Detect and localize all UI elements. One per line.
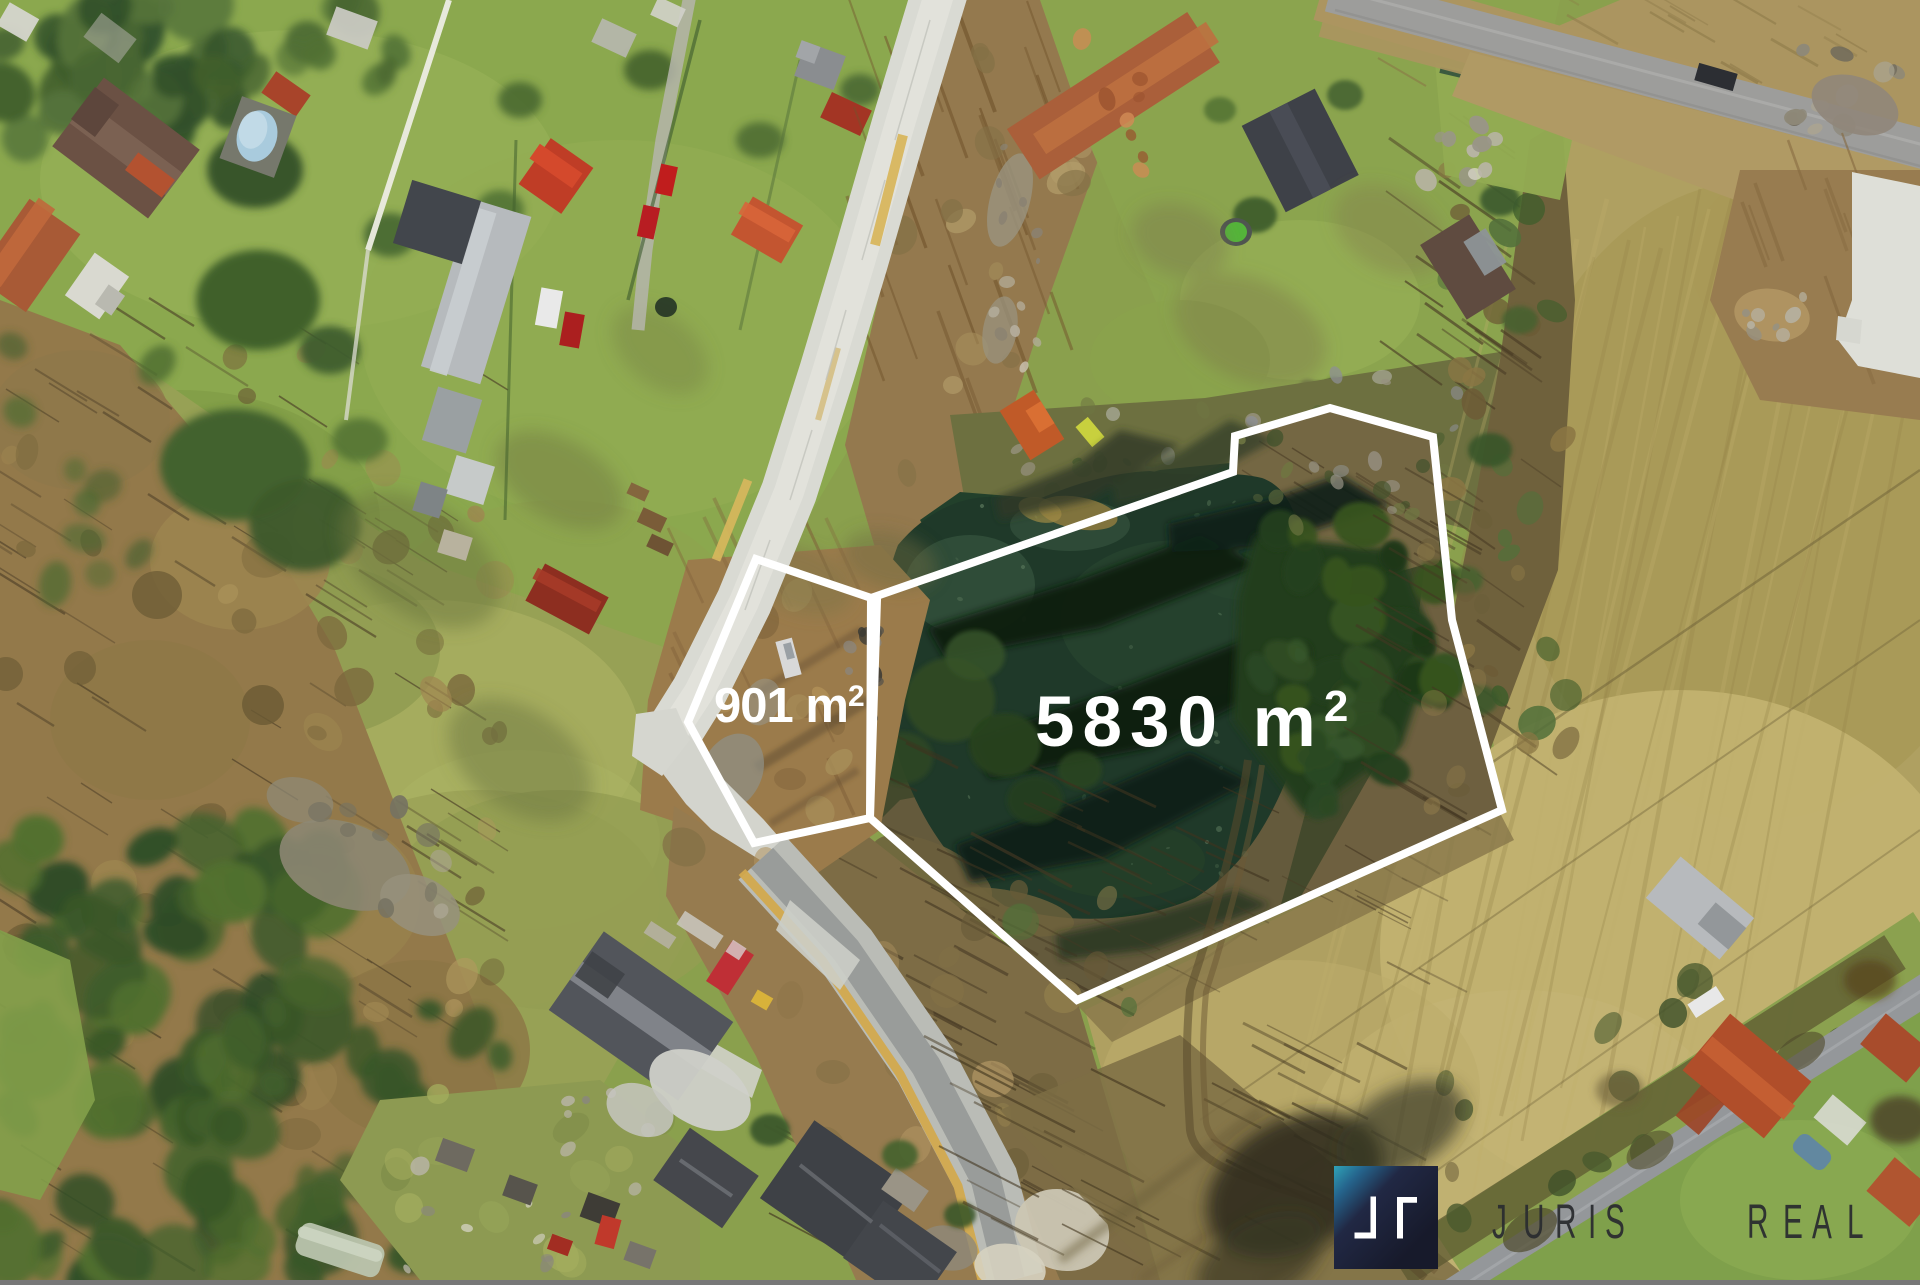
svg-text:R: R: [1555, 1196, 1576, 1249]
svg-text:E: E: [1783, 1196, 1803, 1249]
svg-text:901 m2: 901 m2: [714, 679, 864, 733]
svg-text:U: U: [1523, 1196, 1544, 1249]
svg-text:L: L: [1847, 1196, 1864, 1249]
svg-text:S: S: [1605, 1196, 1625, 1249]
svg-text:R: R: [1747, 1196, 1768, 1249]
svg-text:J: J: [1492, 1196, 1507, 1249]
svg-text:I: I: [1588, 1196, 1596, 1249]
svg-text:A: A: [1812, 1196, 1832, 1249]
svg-text:5830 m2: 5830 m2: [1035, 682, 1356, 762]
